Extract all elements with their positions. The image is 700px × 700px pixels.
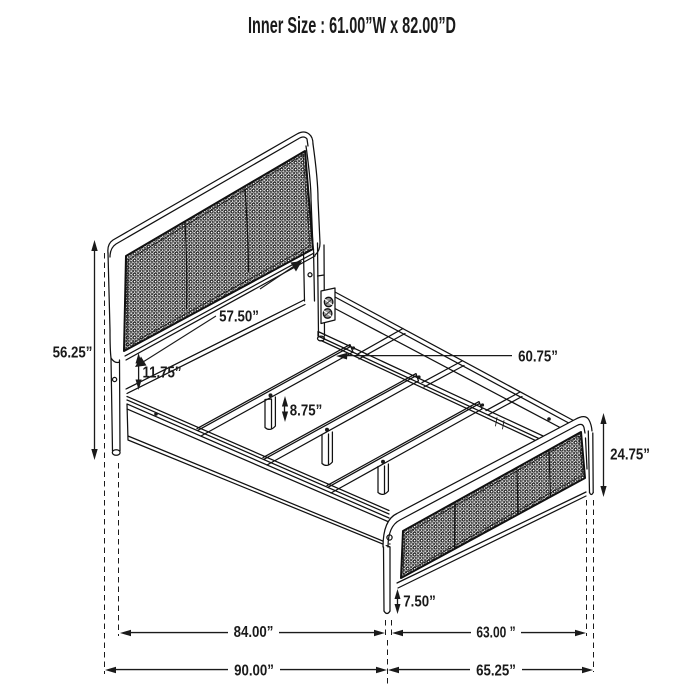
svg-text:90.00”: 90.00” [234,662,274,679]
svg-text:11.75”: 11.75” [142,364,181,381]
svg-text:56.25”: 56.25” [53,344,93,361]
svg-text:24.75”: 24.75” [610,446,650,463]
svg-text:65.25”: 65.25” [476,662,516,679]
svg-text:84.00”: 84.00” [234,624,274,641]
svg-text:7.50”: 7.50” [403,593,435,610]
svg-text:8.75”: 8.75” [290,402,322,419]
svg-text:Inner Size : 61.00”W x 82.00”D: Inner Size : 61.00”W x 82.00”D [248,13,456,40]
svg-text:60.75”: 60.75” [518,348,558,365]
svg-text:63.00 ”: 63.00 ” [476,623,515,641]
svg-text:57.50”: 57.50” [219,308,259,325]
